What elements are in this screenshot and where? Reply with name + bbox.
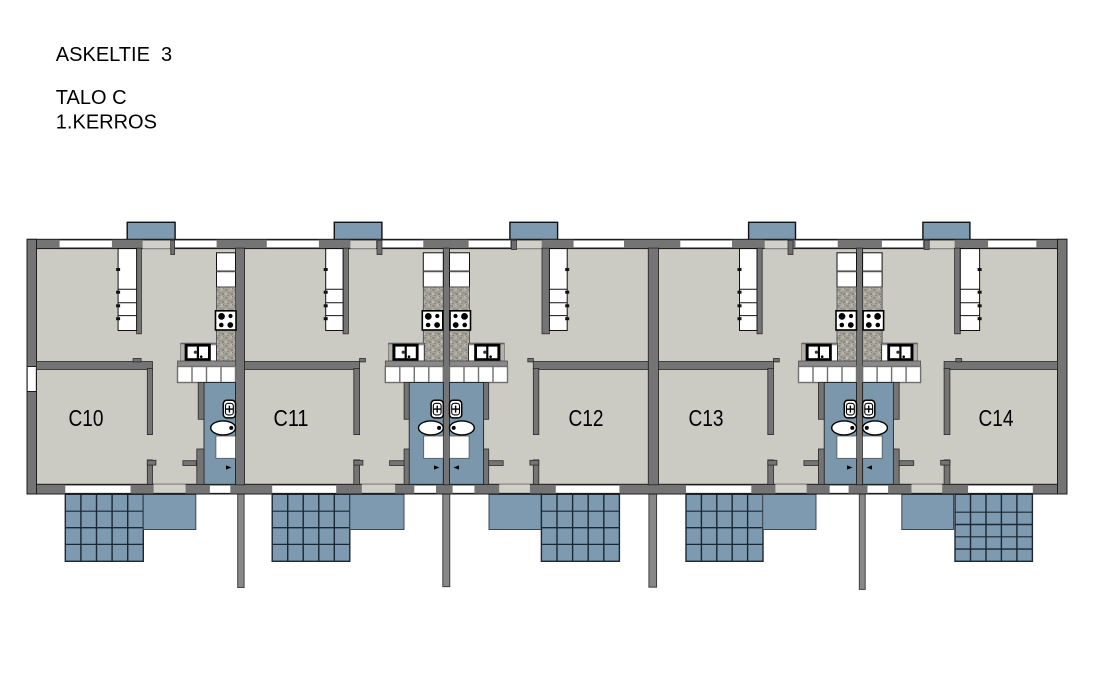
svg-text:ASKELTIE 3: ASKELTIE 3 — [56, 44, 172, 66]
svg-text:C12: C12 — [569, 405, 604, 431]
svg-text:TALO C: TALO C — [56, 87, 127, 109]
svg-text:1.KERROS: 1.KERROS — [56, 112, 157, 134]
svg-text:C14: C14 — [979, 405, 1014, 431]
svg-text:C10: C10 — [69, 405, 104, 431]
svg-text:C11: C11 — [274, 405, 309, 431]
svg-text:C13: C13 — [689, 405, 724, 431]
